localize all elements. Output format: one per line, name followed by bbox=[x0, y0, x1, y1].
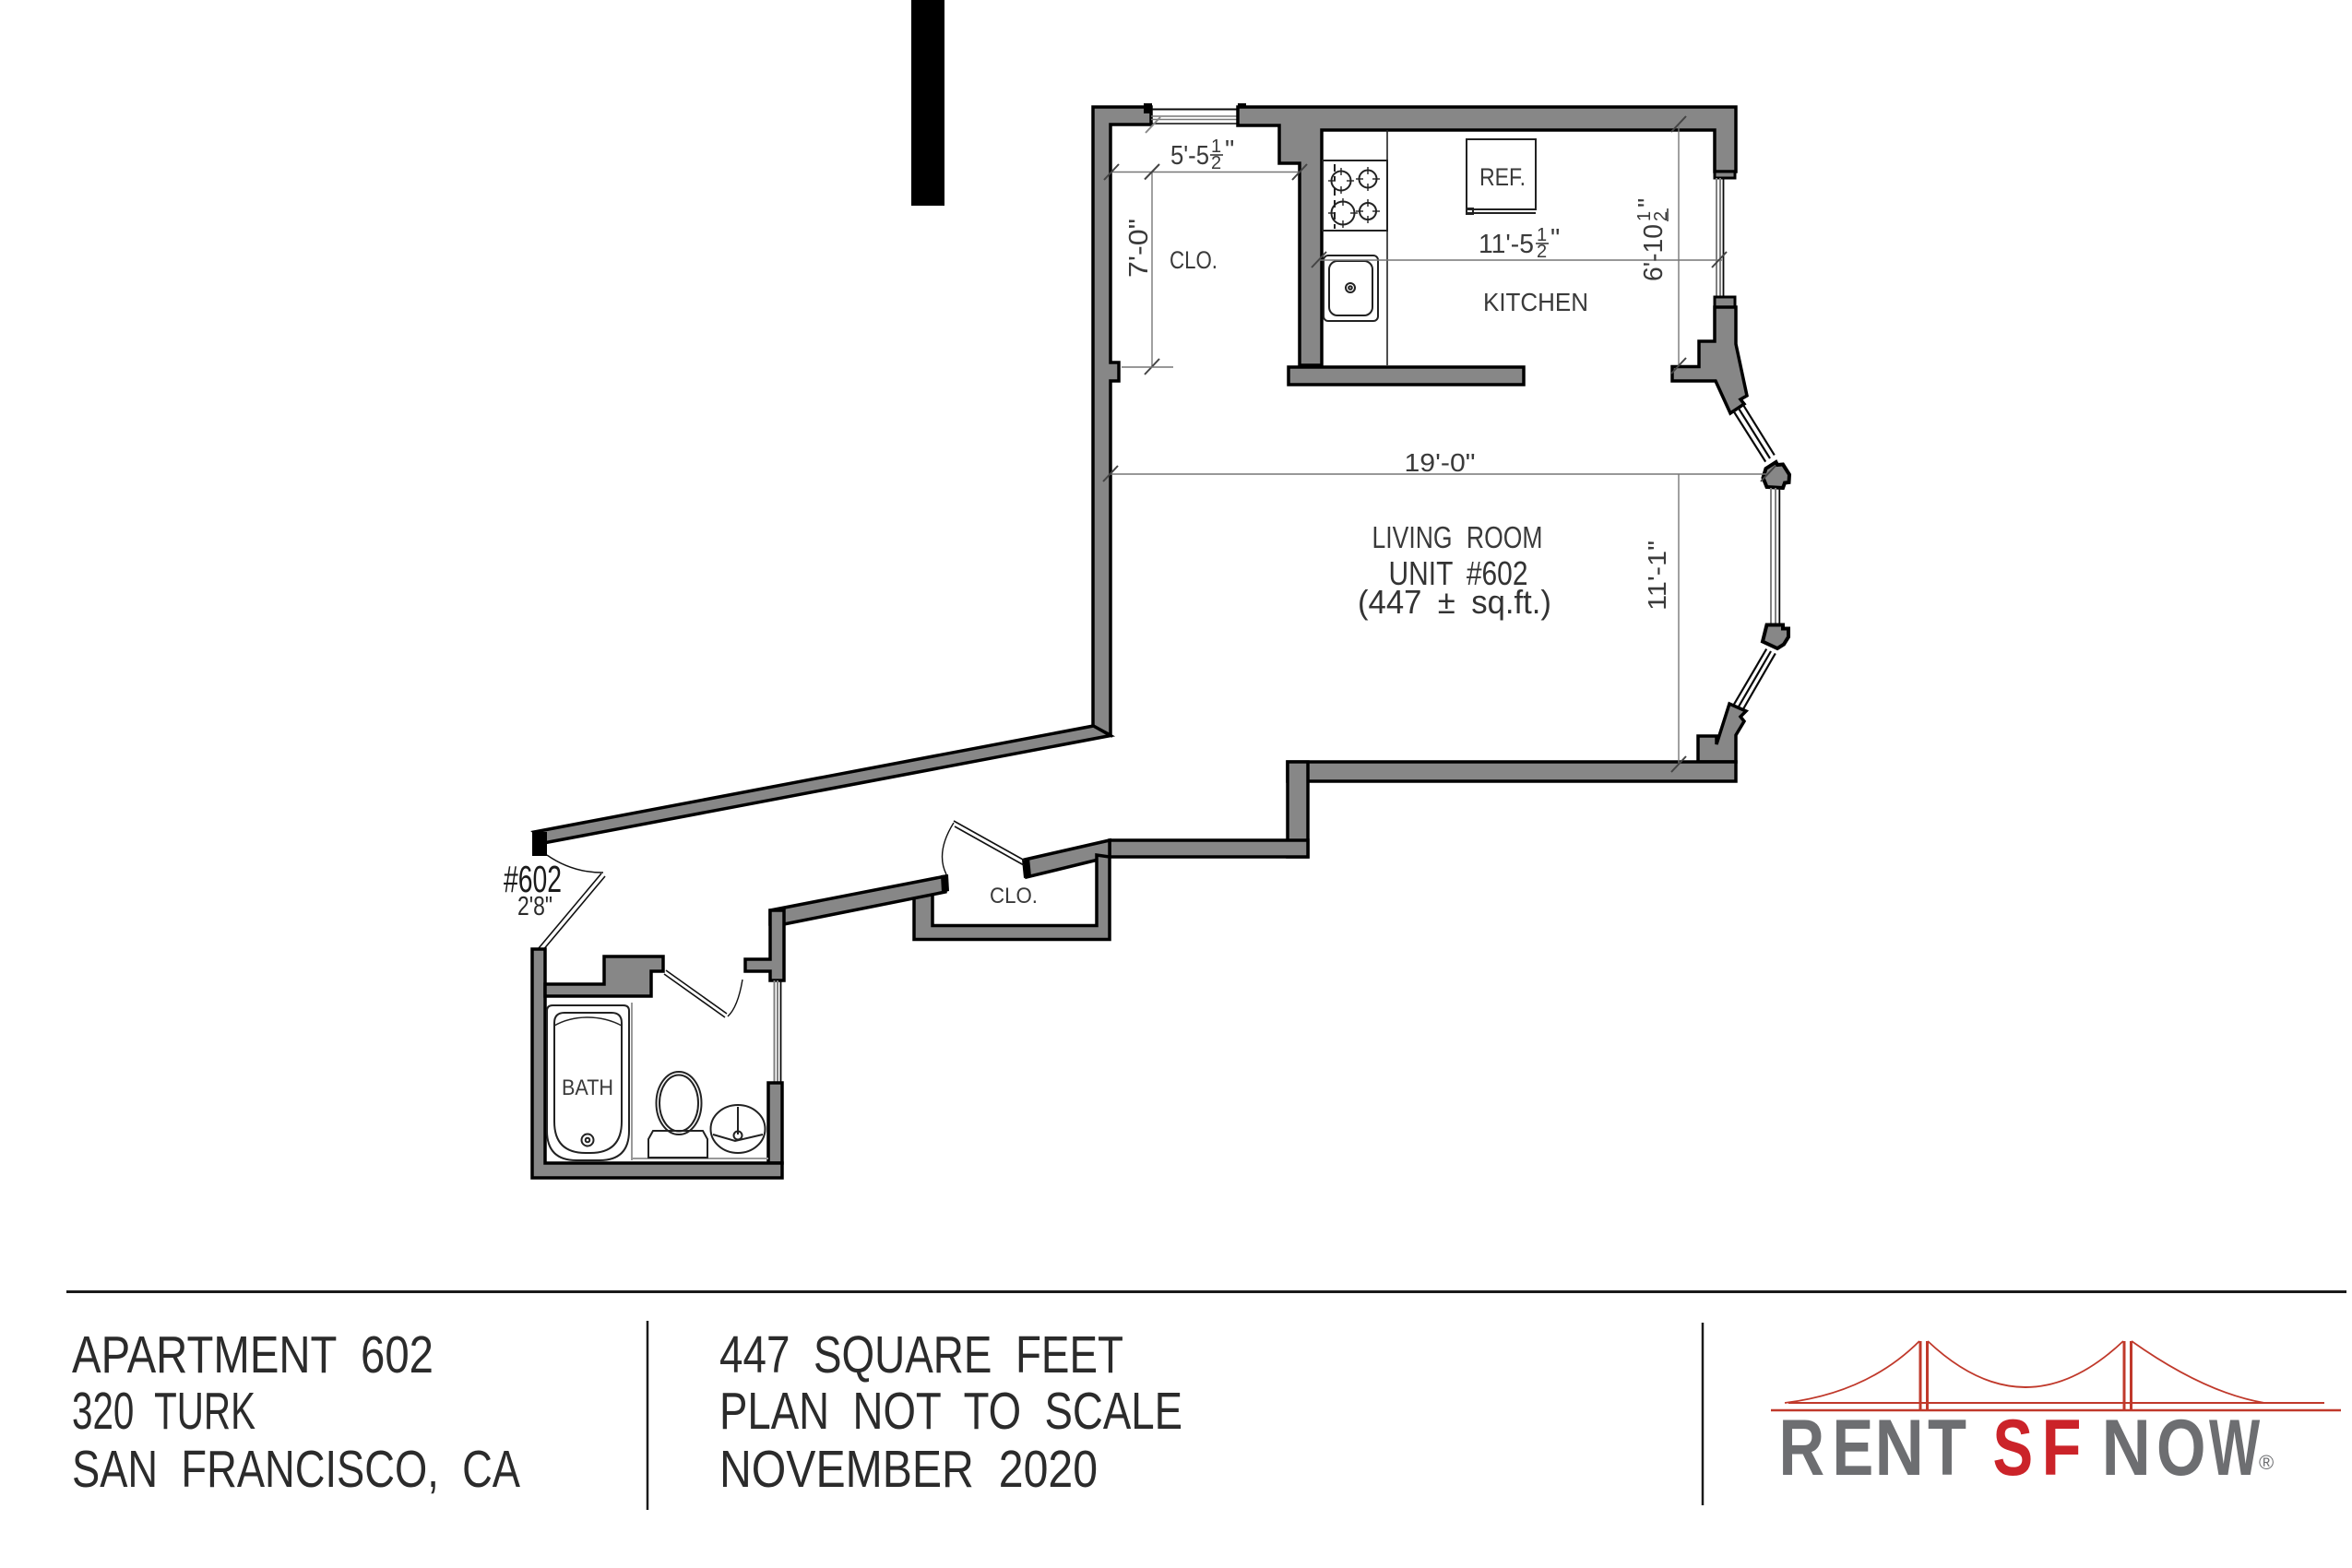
svg-text:19'-0": 19'-0" bbox=[1405, 448, 1476, 477]
svg-text:N: N bbox=[1875, 1403, 1924, 1492]
svg-text:S: S bbox=[1993, 1404, 2034, 1492]
svg-text:447 SQUARE FEET: 447 SQUARE FEET bbox=[719, 1325, 1123, 1384]
svg-text:CLO.: CLO. bbox=[1170, 246, 1218, 274]
svg-text:NOVEMBER 2020: NOVEMBER 2020 bbox=[719, 1440, 1098, 1499]
svg-text:R: R bbox=[1779, 1404, 1825, 1492]
svg-text:T: T bbox=[1928, 1404, 1966, 1492]
svg-text:5'-5: 5'-5 bbox=[1170, 141, 1209, 171]
svg-text:7'-0": 7'-0" bbox=[1124, 219, 1154, 278]
svg-text:11'-5: 11'-5 bbox=[1479, 230, 1534, 259]
svg-text:CLO.: CLO. bbox=[990, 884, 1038, 909]
svg-text:11'-1": 11'-1" bbox=[1643, 540, 1671, 611]
svg-text:W: W bbox=[2209, 1403, 2261, 1492]
svg-text:(447 ± sq.ft.): (447 ± sq.ft.) bbox=[1358, 583, 1551, 621]
svg-text:®: ® bbox=[2259, 1451, 2274, 1474]
svg-text:": " bbox=[1633, 198, 1663, 208]
svg-text:PLAN NOT TO SCALE: PLAN NOT TO SCALE bbox=[719, 1382, 1182, 1441]
svg-text:F: F bbox=[2042, 1403, 2082, 1491]
svg-text:2: 2 bbox=[1537, 242, 1547, 262]
svg-text:REF.: REF. bbox=[1479, 163, 1526, 191]
svg-text:KITCHEN: KITCHEN bbox=[1483, 288, 1588, 316]
svg-text:2: 2 bbox=[1211, 153, 1221, 173]
svg-text:SAN FRANCISCO, CA: SAN FRANCISCO, CA bbox=[72, 1440, 520, 1499]
svg-text:": " bbox=[1225, 136, 1234, 165]
svg-text:6'-10: 6'-10 bbox=[1639, 224, 1669, 281]
svg-text:BATH: BATH bbox=[562, 1075, 613, 1100]
svg-text:2'8": 2'8" bbox=[517, 892, 552, 921]
svg-text:LIVING ROOM: LIVING ROOM bbox=[1372, 520, 1543, 554]
svg-text:": " bbox=[1550, 224, 1560, 254]
svg-text:N: N bbox=[2102, 1403, 2151, 1492]
svg-text:320 TURK: 320 TURK bbox=[72, 1382, 255, 1441]
svg-text:O: O bbox=[2156, 1404, 2206, 1492]
svg-text:APARTMENT 602: APARTMENT 602 bbox=[72, 1325, 434, 1384]
svg-text:E: E bbox=[1833, 1404, 1874, 1492]
